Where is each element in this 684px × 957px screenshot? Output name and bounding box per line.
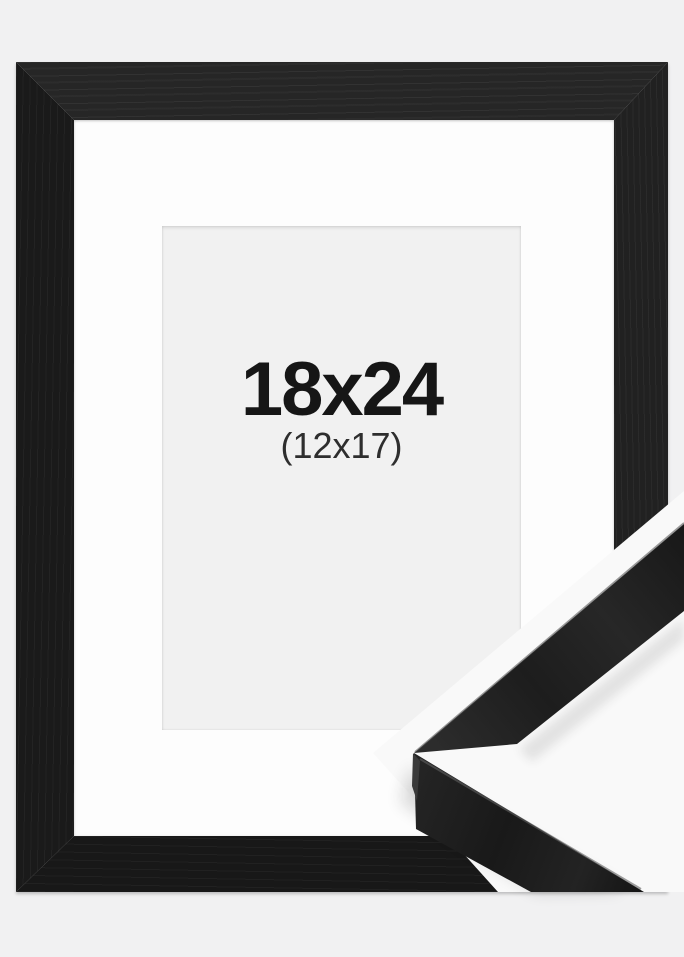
product-image[interactable]: 18x24 (12x17): [0, 0, 684, 957]
corner-detail-inset: [0, 0, 684, 957]
